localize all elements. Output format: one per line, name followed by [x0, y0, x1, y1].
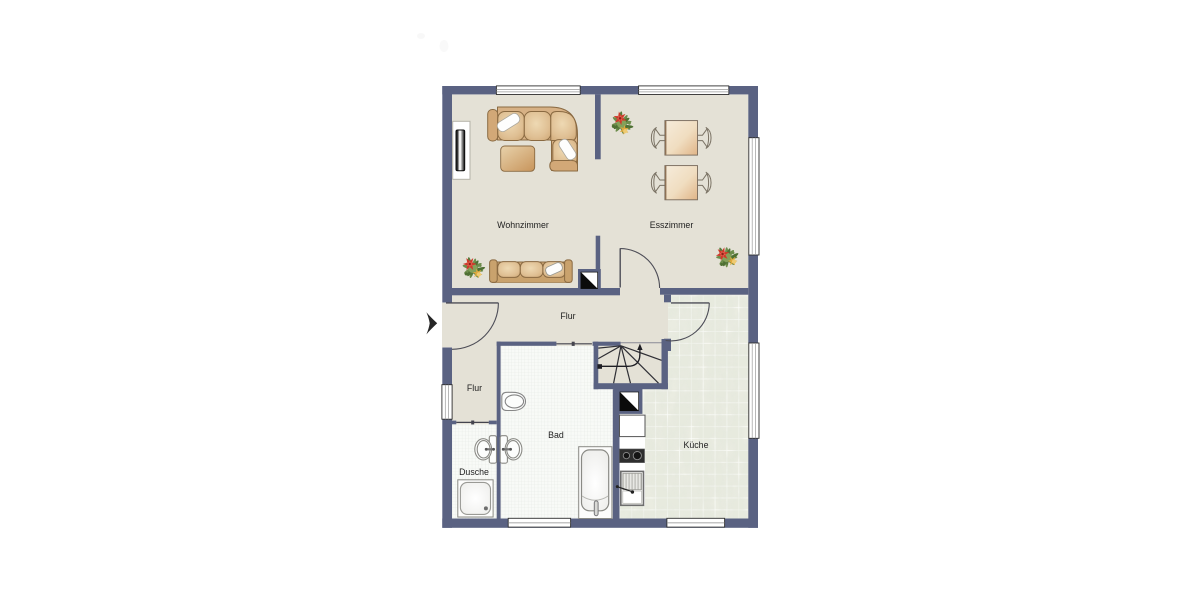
svg-text:Dusche: Dusche — [459, 467, 489, 477]
svg-text:Wohnzimmer: Wohnzimmer — [497, 220, 549, 230]
svg-text:Küche: Küche — [684, 440, 709, 450]
svg-text:Flur: Flur — [560, 311, 575, 321]
svg-text:Flur: Flur — [467, 383, 482, 393]
svg-text:Esszimmer: Esszimmer — [650, 220, 694, 230]
svg-text:Bad: Bad — [548, 430, 564, 440]
